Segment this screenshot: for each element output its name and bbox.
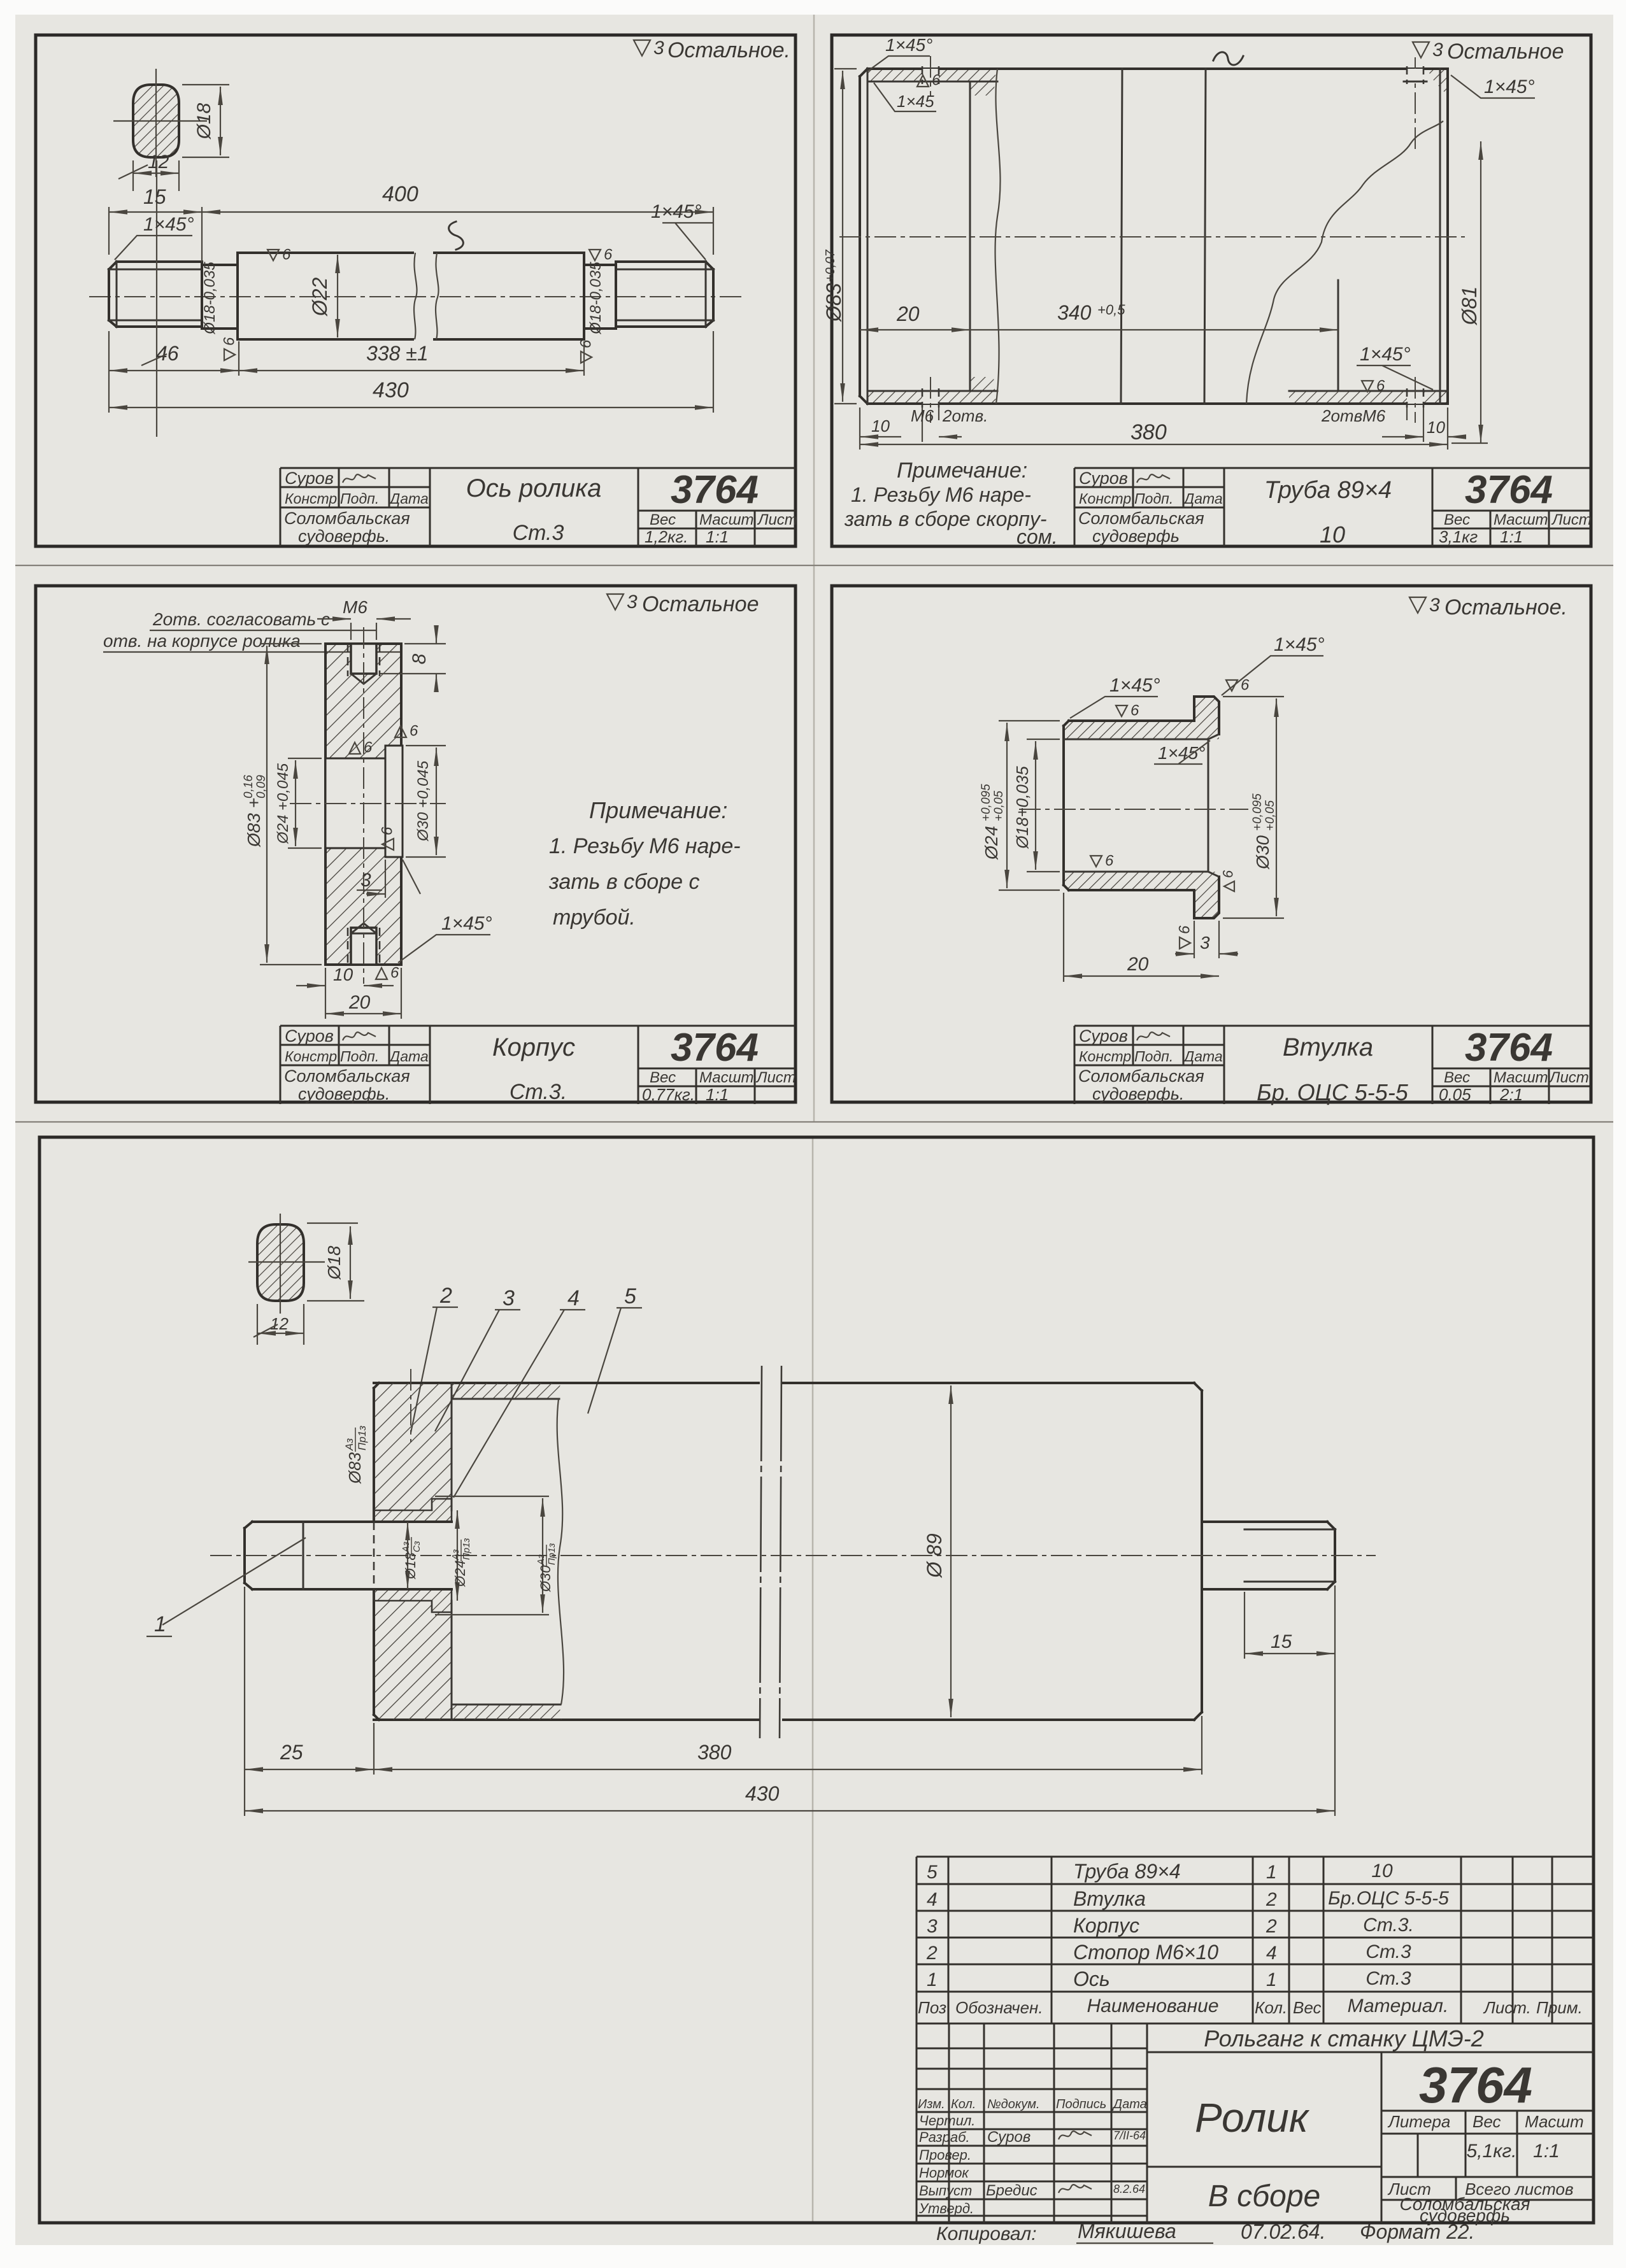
svg-text:Остальное: Остальное [1447, 39, 1564, 64]
svg-text:+0,5: +0,5 [1097, 302, 1125, 318]
svg-text:Лист.: Лист. [1483, 1998, 1531, 2017]
svg-text:1. Резьбу М6 наре-: 1. Резьбу М6 наре- [851, 483, 1031, 506]
svg-text:Лист: Лист [757, 511, 797, 528]
svg-text:Подп.: Подп. [1134, 1048, 1173, 1065]
svg-text:зать в сборе с: зать в сборе с [548, 870, 699, 894]
svg-text:Ст.3: Ст.3 [513, 521, 564, 545]
svg-text:Ø30: Ø30 [1253, 835, 1273, 870]
svg-text:Масшт: Масшт [699, 511, 754, 528]
svg-text:6: 6 [282, 246, 291, 263]
svg-text:6: 6 [1130, 702, 1139, 719]
svg-text:Констр.: Констр. [1079, 490, 1136, 507]
svg-text:Ø18: Ø18 [194, 103, 215, 139]
svg-text:Формат 22.: Формат 22. [1360, 2220, 1474, 2243]
svg-text:430: 430 [745, 1782, 780, 1805]
svg-text:6: 6 [1220, 870, 1236, 878]
svg-text:1×45°: 1×45° [441, 913, 492, 934]
svg-text:2: 2 [926, 1943, 938, 1964]
svg-text:Аз: Аз [343, 1438, 355, 1451]
svg-text:+0,05: +0,05 [1264, 800, 1277, 831]
svg-text:Поз: Поз [918, 1998, 946, 2017]
svg-text:0,09: 0,09 [255, 775, 268, 798]
svg-text:1×45°: 1×45° [1274, 634, 1325, 655]
svg-text:6: 6 [364, 739, 373, 756]
svg-text:Ø 89: Ø 89 [923, 1533, 946, 1578]
svg-text:отв. на корпусе ролика: отв. на корпусе ролика [103, 631, 301, 651]
svg-text:Бр.ОЦС 5-5-5: Бр.ОЦС 5-5-5 [1328, 1888, 1449, 1909]
svg-text:Бредис: Бредис [986, 2182, 1038, 2199]
svg-text:20: 20 [348, 992, 371, 1013]
svg-text:Копировал:: Копировал: [936, 2223, 1037, 2244]
svg-text:5,1кг.: 5,1кг. [1467, 2141, 1517, 2162]
svg-text:Констр.: Констр. [285, 490, 341, 507]
svg-text:Масшт: Масшт [699, 1069, 754, 1086]
svg-text:1×45°: 1×45° [885, 35, 932, 55]
svg-text:10: 10 [1371, 1860, 1393, 1882]
svg-text:Ø18-0,035: Ø18-0,035 [201, 262, 218, 335]
svg-text:07.02.64.: 07.02.64. [1241, 2220, 1325, 2243]
svg-text:Подп.: Подп. [340, 490, 379, 507]
svg-text:Констр.: Констр. [285, 1048, 341, 1065]
svg-text:2отв.: 2отв. [942, 406, 988, 425]
svg-text:Литера: Литера [1387, 2112, 1450, 2131]
svg-text:Соломбальская: Соломбальская [1078, 509, 1204, 528]
svg-text:Кол.: Кол. [951, 2097, 976, 2111]
svg-text:3: 3 [1432, 39, 1443, 60]
svg-text:Ø81: Ø81 [1458, 287, 1481, 325]
svg-text:1: 1 [1266, 1862, 1277, 1883]
svg-text:Материал.: Материал. [1348, 1995, 1449, 2016]
svg-text:3: 3 [627, 592, 638, 613]
svg-text:Кол.: Кол. [1255, 1998, 1287, 2017]
svg-text:Остальное.: Остальное. [667, 38, 790, 62]
svg-text:Дата: Дата [388, 490, 429, 507]
svg-text:Труба 89×4: Труба 89×4 [1264, 477, 1392, 504]
svg-text:Обозначен.: Обозначен. [955, 1998, 1043, 2017]
svg-text:3764: 3764 [1465, 1026, 1553, 1070]
svg-text:3764: 3764 [671, 468, 759, 512]
svg-text:7/II-64: 7/II-64 [1113, 2129, 1146, 2142]
svg-text:6: 6 [1105, 852, 1114, 869]
svg-text:3: 3 [1200, 933, 1210, 953]
svg-text:6: 6 [1376, 377, 1385, 394]
svg-text:2:1: 2:1 [1499, 1085, 1523, 1104]
svg-text:10: 10 [871, 416, 890, 436]
svg-text:Вес: Вес [1293, 1998, 1322, 2017]
svg-text:1×45°: 1×45° [651, 201, 702, 222]
svg-text:Дата: Дата [388, 1048, 429, 1065]
svg-text:Суров: Суров [285, 1026, 334, 1045]
svg-text:3764: 3764 [671, 1026, 759, 1070]
svg-text:4: 4 [927, 1889, 938, 1910]
svg-text:Ø30 +0,045: Ø30 +0,045 [415, 760, 432, 842]
svg-text:20: 20 [896, 302, 920, 325]
svg-text:6: 6 [1241, 676, 1250, 693]
svg-text:Мякишева: Мякишева [1078, 2220, 1176, 2243]
svg-text:Вес: Вес [1473, 2112, 1501, 2131]
svg-text:Вес: Вес [1444, 511, 1470, 528]
svg-text:Ст.3.: Ст.3. [510, 1080, 567, 1104]
svg-text:6: 6 [378, 826, 396, 835]
svg-text:Ø83: Ø83 [822, 283, 845, 322]
svg-text:2отвМ6: 2отвМ6 [1321, 406, 1386, 425]
svg-text:Ст.3: Ст.3 [1366, 1968, 1411, 1989]
svg-text:4: 4 [1266, 1943, 1277, 1964]
svg-text:Провер.: Провер. [919, 2147, 971, 2163]
svg-text:15: 15 [143, 185, 166, 208]
svg-text:№докум.: №докум. [987, 2097, 1040, 2111]
svg-text:Выпуст: Выпуст [919, 2183, 972, 2199]
svg-text:46: 46 [156, 342, 179, 365]
svg-text:Примечание:: Примечание: [589, 797, 727, 823]
svg-text:Ø18: Ø18 [324, 1245, 344, 1280]
svg-text:0,16: 0,16 [242, 775, 255, 798]
svg-text:Ø24: Ø24 [452, 1560, 468, 1587]
svg-text:Суров: Суров [1079, 1026, 1128, 1045]
svg-text:1:1: 1:1 [1533, 2141, 1560, 2162]
svg-text:трубой.: трубой. [553, 905, 636, 930]
svg-text:Труба 89×4: Труба 89×4 [1073, 1860, 1181, 1883]
svg-text:8.2.64: 8.2.64 [1113, 2183, 1145, 2195]
svg-text:Остальное.: Остальное. [1444, 595, 1567, 620]
svg-text:Суров: Суров [285, 469, 334, 488]
svg-text:сом.: сом. [1016, 525, 1058, 548]
svg-text:1,2кг.: 1,2кг. [645, 527, 688, 546]
svg-text:Втулка: Втулка [1283, 1033, 1373, 1061]
svg-text:3: 3 [360, 870, 371, 891]
svg-text:380: 380 [1130, 420, 1167, 444]
svg-text:Прим.: Прим. [1536, 1998, 1583, 2017]
svg-text:1×45: 1×45 [897, 92, 934, 111]
svg-text:4: 4 [567, 1286, 580, 1310]
svg-text:12: 12 [270, 1314, 289, 1333]
svg-text:6: 6 [1176, 925, 1193, 934]
svg-text:25: 25 [280, 1741, 303, 1764]
svg-text:Подп.: Подп. [340, 1048, 379, 1065]
svg-text:Лист: Лист [755, 1069, 796, 1086]
svg-text:Масшт: Масшт [1494, 511, 1548, 528]
svg-text:430: 430 [373, 378, 409, 402]
svg-text:Ø22: Ø22 [308, 278, 331, 317]
svg-text:Ст.3: Ст.3 [1366, 1941, 1411, 1962]
svg-text:Ø24: Ø24 [981, 826, 1001, 860]
svg-text:+0,095: +0,095 [980, 784, 993, 821]
svg-text:2: 2 [1266, 1916, 1277, 1937]
svg-text:1×45°: 1×45° [1484, 76, 1535, 97]
svg-text:Дата: Дата [1112, 2097, 1147, 2111]
svg-text:Лист: Лист [1551, 511, 1592, 528]
svg-text:Ось ролика: Ось ролика [466, 474, 602, 502]
svg-text:20: 20 [1127, 954, 1149, 975]
svg-text:1: 1 [1266, 1969, 1277, 1990]
svg-text:1×45°: 1×45° [1109, 675, 1160, 696]
svg-text:3764: 3764 [1419, 2057, 1532, 2113]
svg-text:1. Резьбу М6 наре-: 1. Резьбу М6 наре- [549, 834, 741, 858]
svg-text:Корпус: Корпус [492, 1033, 575, 1061]
svg-text:судоверфь.: судоверфь. [1092, 1084, 1184, 1103]
svg-text:5: 5 [624, 1284, 636, 1308]
svg-text:1×45°: 1×45° [143, 214, 194, 235]
svg-text:М6: М6 [343, 597, 367, 617]
svg-text:Подп.: Подп. [1134, 490, 1173, 507]
svg-text:3764: 3764 [1465, 468, 1553, 512]
svg-text:Ø18-0,035: Ø18-0,035 [587, 262, 604, 335]
svg-text:1×45°: 1×45° [1158, 743, 1205, 763]
svg-text:Утверд.: Утверд. [918, 2201, 974, 2216]
svg-text:Ø18+0,035: Ø18+0,035 [1013, 766, 1032, 849]
svg-text:2: 2 [1266, 1889, 1277, 1910]
svg-text:6: 6 [577, 339, 594, 348]
svg-text:10: 10 [1427, 418, 1445, 437]
svg-text:Аз: Аз [401, 1542, 411, 1553]
svg-text:1: 1 [927, 1969, 938, 1990]
svg-text:Масшт: Масшт [1525, 2112, 1584, 2131]
svg-text:В сборе: В сборе [1208, 2179, 1320, 2213]
svg-text:судоверфь.: судоверфь. [298, 1084, 390, 1103]
svg-text:Бр. ОЦС 5-5-5: Бр. ОЦС 5-5-5 [1257, 1079, 1409, 1105]
svg-text:3: 3 [653, 38, 664, 59]
svg-text:Соломбальская: Соломбальская [1078, 1067, 1204, 1086]
svg-text:судоверфь: судоверфь [1092, 527, 1180, 546]
svg-text:Примечание:: Примечание: [897, 458, 1027, 483]
svg-text:2: 2 [439, 1284, 452, 1308]
svg-text:М6: М6 [911, 406, 934, 425]
svg-text:Ролик: Ролик [1195, 2095, 1310, 2141]
svg-text:Лист: Лист [1548, 1069, 1589, 1086]
svg-text:1:1: 1:1 [706, 1085, 729, 1104]
svg-text:Вес: Вес [650, 511, 676, 528]
svg-text:400: 400 [382, 182, 418, 206]
svg-text:Суров: Суров [987, 2129, 1031, 2146]
svg-text:6: 6 [220, 337, 238, 346]
svg-text:Дата: Дата [1182, 490, 1223, 507]
svg-text:15: 15 [1271, 1631, 1292, 1652]
svg-text:Ø83 +: Ø83 + [244, 798, 264, 847]
svg-text:Соломбальская: Соломбальская [284, 509, 410, 528]
svg-text:Аз: Аз [450, 1549, 461, 1561]
svg-text:Втулка: Втулка [1073, 1887, 1146, 1910]
svg-text:Вес: Вес [1444, 1069, 1470, 1086]
svg-text:10: 10 [1320, 521, 1345, 548]
svg-text:3: 3 [927, 1916, 938, 1937]
svg-text:Масшт: Масшт [1494, 1069, 1548, 1086]
svg-text:Ст.3.: Ст.3. [1363, 1915, 1414, 1936]
svg-text:8: 8 [409, 653, 430, 664]
svg-text:+0,05: +0,05 [992, 790, 1006, 821]
svg-text:Вес: Вес [650, 1069, 676, 1086]
svg-text:Пр1з: Пр1з [356, 1426, 368, 1450]
svg-text:Стопор М6×10: Стопор М6×10 [1073, 1941, 1218, 1964]
svg-text:1:1: 1:1 [1500, 527, 1523, 546]
svg-text:Нормок: Нормок [919, 2165, 969, 2181]
svg-text:Ø83: Ø83 [345, 1452, 364, 1484]
svg-text:+0,07: +0,07 [824, 250, 838, 282]
svg-text:Соломбальская: Соломбальская [284, 1067, 410, 1086]
svg-text:Ø30: Ø30 [538, 1565, 553, 1592]
svg-text:10: 10 [333, 965, 353, 984]
svg-text:Суров: Суров [1079, 469, 1128, 488]
svg-text:6: 6 [932, 71, 941, 89]
svg-text:+0,095: +0,095 [1251, 793, 1264, 831]
svg-text:Разраб.: Разраб. [919, 2129, 970, 2145]
svg-text:Сз: Сз [411, 1541, 422, 1552]
svg-text:Ось: Ось [1073, 1967, 1110, 1990]
svg-text:0,77кг.: 0,77кг. [642, 1085, 695, 1104]
svg-text:Наименование: Наименование [1087, 1995, 1218, 2016]
svg-text:Подпись: Подпись [1056, 2097, 1106, 2111]
svg-text:Дата: Дата [1182, 1048, 1223, 1065]
svg-text:Корпус: Корпус [1073, 1914, 1139, 1937]
svg-text:1:1: 1:1 [706, 527, 729, 546]
svg-text:Пр1з: Пр1з [461, 1538, 472, 1560]
svg-text:Изм.: Изм. [918, 2097, 945, 2111]
svg-text:3: 3 [1429, 595, 1440, 616]
svg-text:6: 6 [390, 964, 399, 981]
svg-text:Пр1з: Пр1з [546, 1543, 557, 1565]
svg-text:12: 12 [148, 152, 169, 173]
svg-text:6: 6 [604, 246, 613, 263]
svg-text:380: 380 [697, 1741, 732, 1764]
svg-text:судоверфь.: судоверфь. [298, 527, 390, 546]
svg-text:3: 3 [503, 1286, 515, 1310]
svg-text:340: 340 [1057, 301, 1092, 324]
svg-text:Констр.: Констр. [1079, 1048, 1136, 1065]
svg-text:3,1кг: 3,1кг [1439, 527, 1478, 546]
svg-text:Ø18: Ø18 [403, 1552, 418, 1580]
svg-text:2отв. согласовать с: 2отв. согласовать с [152, 609, 330, 629]
svg-text:5: 5 [927, 1862, 938, 1883]
svg-text:1×45°: 1×45° [1360, 344, 1411, 365]
svg-text:Аз: Аз [536, 1554, 546, 1566]
svg-text:Чертил.: Чертил. [919, 2113, 975, 2129]
svg-text:6: 6 [410, 722, 418, 739]
svg-text:Рольганг к станку ЦМЭ-2: Рольганг к станку ЦМЭ-2 [1204, 2025, 1484, 2052]
svg-text:0,05: 0,05 [1439, 1085, 1471, 1104]
svg-text:Ø24 +0,045: Ø24 +0,045 [275, 763, 292, 844]
svg-text:338 ±1: 338 ±1 [366, 342, 429, 365]
svg-text:Остальное: Остальное [642, 592, 759, 616]
